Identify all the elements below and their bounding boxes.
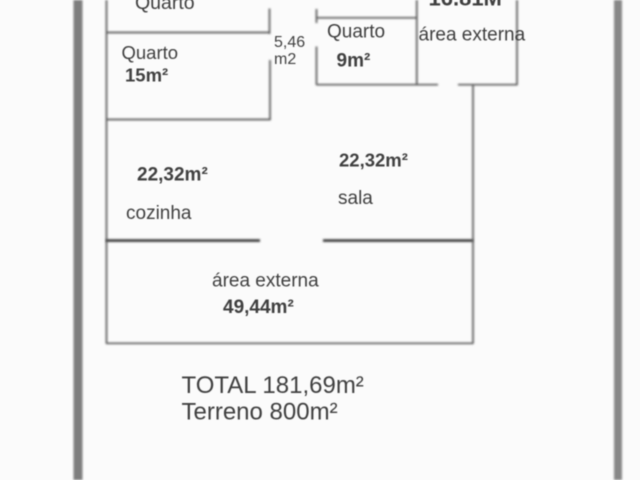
svg-text:Quarto: Quarto (122, 42, 179, 63)
svg-text:área externa: área externa (419, 25, 526, 46)
svg-text:cozinha: cozinha (126, 203, 192, 224)
svg-text:área externa: área externa (212, 271, 319, 292)
svg-text:16.81M²: 16.81M² (429, 0, 510, 11)
svg-text:m2: m2 (274, 51, 296, 68)
svg-text:22,32m²: 22,32m² (339, 150, 408, 171)
svg-text:15m²: 15m² (125, 65, 168, 86)
svg-text:Quarto: Quarto (135, 0, 195, 14)
svg-text:5,46: 5,46 (274, 34, 305, 51)
svg-text:49,44m²: 49,44m² (223, 297, 294, 318)
svg-text:TOTAL 181,69m²: TOTAL 181,69m² (182, 372, 364, 399)
svg-text:Terreno 800m²: Terreno 800m² (182, 399, 338, 426)
svg-text:Quarto: Quarto (327, 22, 385, 43)
svg-text:9m²: 9m² (337, 51, 371, 72)
svg-text:22,32m²: 22,32m² (137, 165, 208, 186)
svg-text:sala: sala (338, 188, 373, 209)
